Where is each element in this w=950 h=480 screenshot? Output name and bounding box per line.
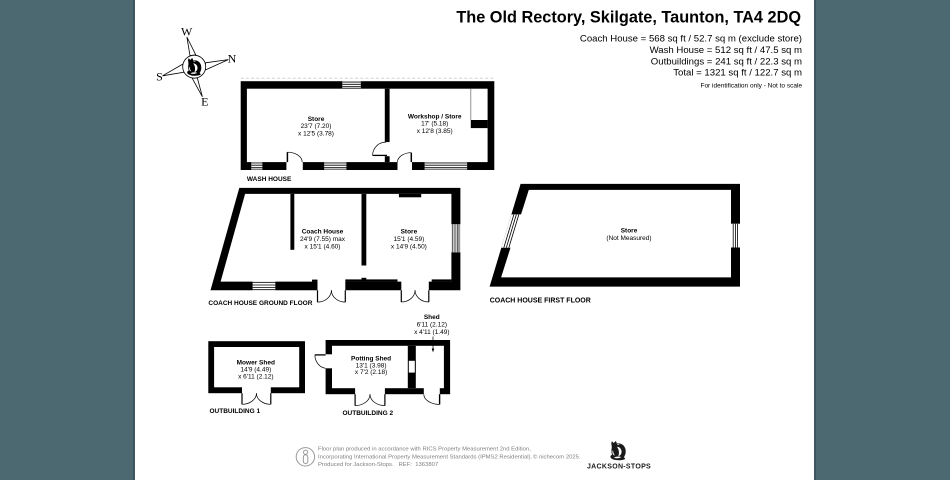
svg-text:JACKSON-STOPS: JACKSON-STOPS xyxy=(587,463,651,470)
svg-text:Outbuildings = 241 sq ft / 22.: Outbuildings = 241 sq ft / 22.3 sq m xyxy=(651,56,802,67)
svg-text:14'9 (4.49): 14'9 (4.49) xyxy=(240,367,271,374)
svg-text:Produced for Jackson-Stops.: Produced for Jackson-Stops. REF: 1363807 xyxy=(318,462,438,468)
svg-text:COACH HOUSE FIRST FLOOR: COACH HOUSE FIRST FLOOR xyxy=(490,298,591,305)
svg-text:x 12'5 (3.78): x 12'5 (3.78) xyxy=(298,131,334,138)
svg-text:Wash House = 512 sq ft / 47.5: Wash House = 512 sq ft / 47.5 sq m xyxy=(650,45,802,56)
svg-text:x 4'11 (1.49): x 4'11 (1.49) xyxy=(414,329,449,336)
svg-text:Floor plan produced in accorda: Floor plan produced in accordance with R… xyxy=(318,447,531,453)
svg-text:x 14'9 (4.50): x 14'9 (4.50) xyxy=(391,243,427,250)
svg-text:Shed: Shed xyxy=(424,314,440,321)
svg-text:Potting Shed: Potting Shed xyxy=(351,355,391,362)
svg-text:(Not Measured): (Not Measured) xyxy=(606,235,651,242)
svg-text:COACH HOUSE GROUND FLOOR: COACH HOUSE GROUND FLOOR xyxy=(208,300,312,307)
svg-text:23'7 (7.20): 23'7 (7.20) xyxy=(301,123,332,130)
svg-text:For identification only - Not: For identification only - Not to scale xyxy=(700,83,802,90)
svg-text:x 15'1 (4.60): x 15'1 (4.60) xyxy=(305,243,341,250)
svg-text:Coach House = 568 sq ft / 52.7: Coach House = 568 sq ft / 52.7 sq m (exc… xyxy=(580,34,802,45)
svg-text:x 6'11 (2.12): x 6'11 (2.12) xyxy=(238,374,273,381)
svg-text:Store: Store xyxy=(308,116,325,123)
svg-text:15'1 (4.59): 15'1 (4.59) xyxy=(393,236,424,243)
svg-text:17' (5.18): 17' (5.18) xyxy=(421,121,448,128)
svg-text:Mower Shed: Mower Shed xyxy=(237,359,275,366)
svg-text:6'11 (2.12): 6'11 (2.12) xyxy=(417,321,447,328)
svg-text:E: E xyxy=(201,95,208,109)
svg-text:Incorporating International Pr: Incorporating International Property Mea… xyxy=(318,454,532,460)
svg-text:x 7'2 (2.18): x 7'2 (2.18) xyxy=(355,369,387,376)
svg-text:N: N xyxy=(228,52,237,66)
svg-text:Coach House: Coach House xyxy=(302,229,344,236)
svg-text:WASH HOUSE: WASH HOUSE xyxy=(247,176,292,183)
svg-text:OUTBUILDING 2: OUTBUILDING 2 xyxy=(343,410,394,417)
svg-text:© nichecom 2025.: © nichecom 2025. xyxy=(533,453,581,460)
svg-text:S: S xyxy=(156,70,163,84)
svg-text:24'9 (7.55) max: 24'9 (7.55) max xyxy=(300,236,346,243)
svg-text:Store: Store xyxy=(401,229,418,236)
svg-text:x 12'8 (3.85): x 12'8 (3.85) xyxy=(417,128,453,135)
svg-text:Store: Store xyxy=(621,227,638,234)
svg-text:OUTBUILDING 1: OUTBUILDING 1 xyxy=(210,408,261,415)
svg-text:W: W xyxy=(181,25,193,39)
svg-text:Total = 1321 sq ft / 122.7 sq: Total = 1321 sq ft / 122.7 sq m xyxy=(673,68,802,79)
svg-text:Workshop / Store: Workshop / Store xyxy=(408,113,462,120)
svg-text:The Old Rectory, Skilgate, Tau: The Old Rectory, Skilgate, Taunton, TA4 … xyxy=(456,8,801,26)
